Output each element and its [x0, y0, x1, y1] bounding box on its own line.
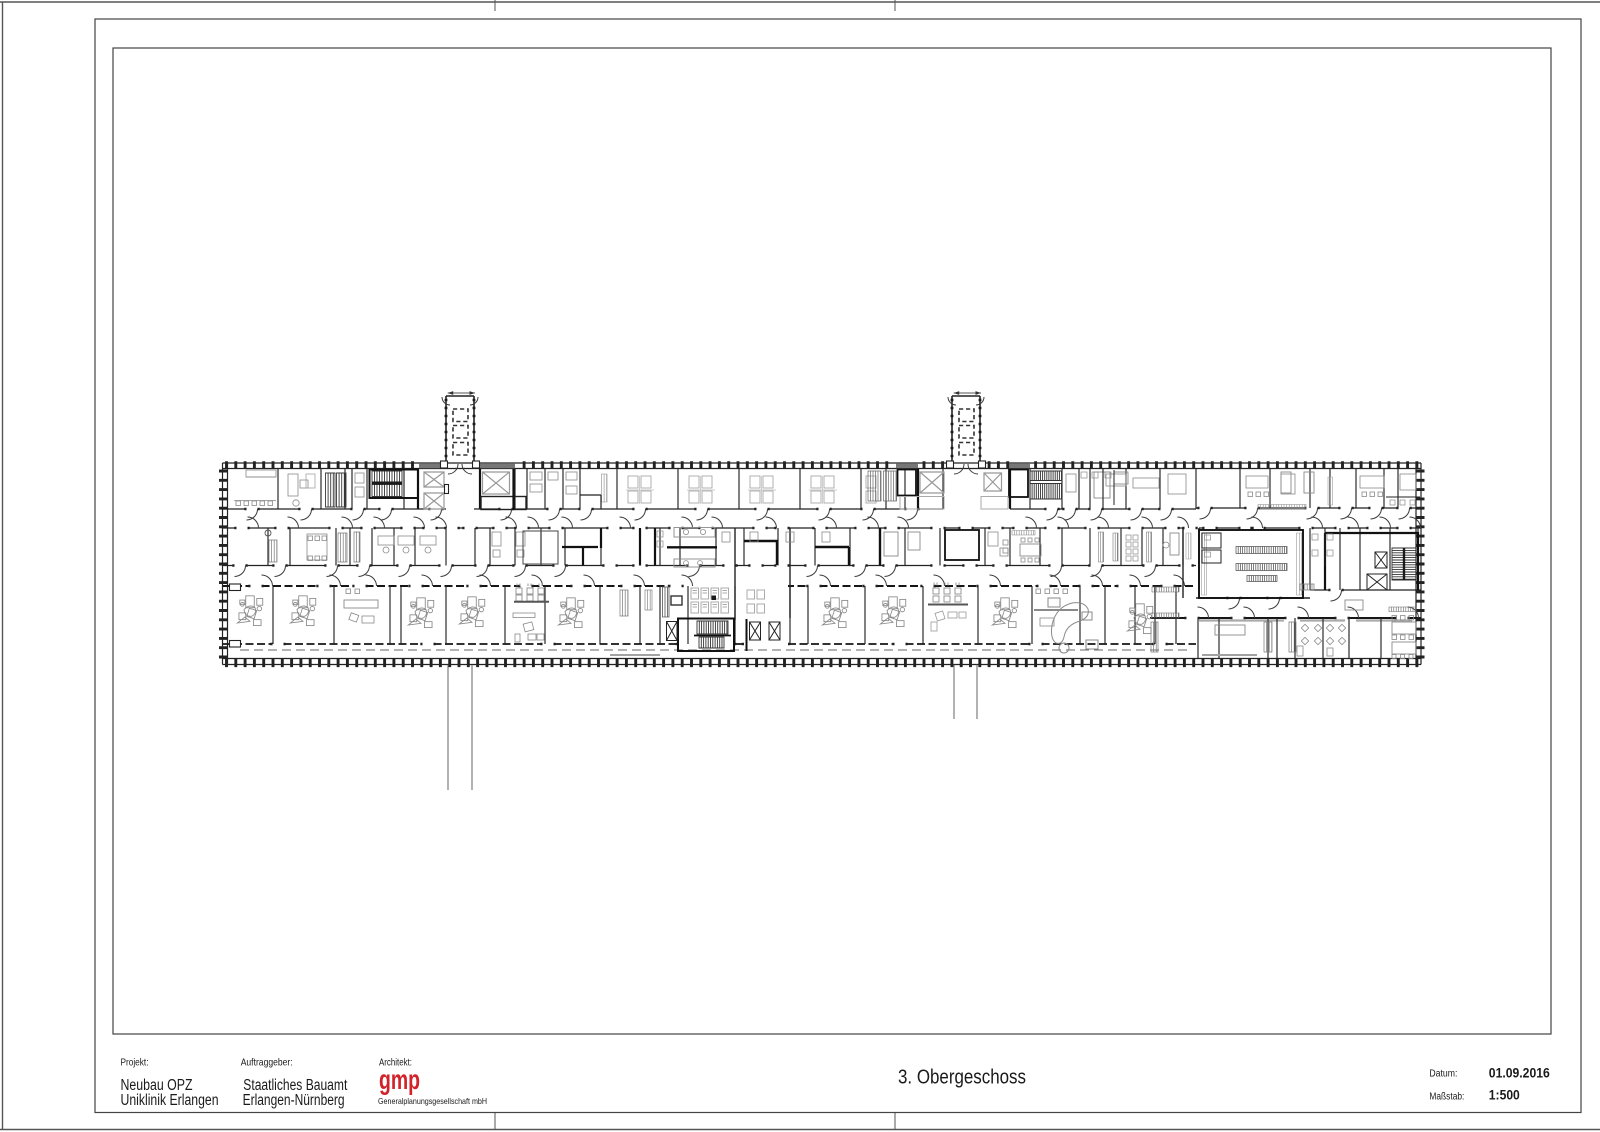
svg-text:Erlangen-Nürnberg: Erlangen-Nürnberg	[243, 1092, 345, 1109]
svg-text:Auftraggeber:: Auftraggeber:	[241, 1057, 293, 1069]
svg-text:01.09.2016: 01.09.2016	[1489, 1065, 1550, 1081]
svg-text:Generalplanungsgesellschaft mb: Generalplanungsgesellschaft mbH	[378, 1096, 487, 1106]
svg-text:Maßstab:: Maßstab:	[1429, 1092, 1464, 1103]
svg-text:Projekt:: Projekt:	[121, 1057, 149, 1069]
svg-text:1:500: 1:500	[1489, 1087, 1520, 1103]
svg-text:gmp: gmp	[379, 1064, 420, 1095]
svg-text:Uniklinik Erlangen: Uniklinik Erlangen	[121, 1092, 219, 1109]
svg-text:3. Obergeschoss: 3. Obergeschoss	[898, 1067, 1026, 1089]
svg-text:Datum:: Datum:	[1429, 1069, 1457, 1080]
